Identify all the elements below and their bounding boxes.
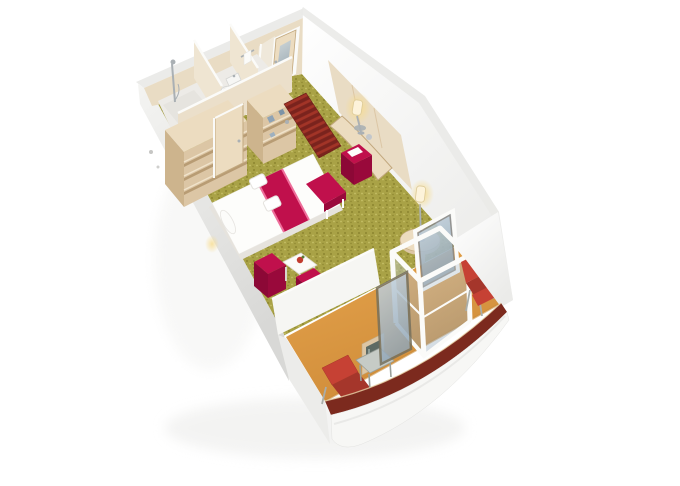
reading-light-glow xyxy=(205,235,219,253)
open-glass-door xyxy=(377,272,411,364)
desk-lamp-base xyxy=(358,131,365,135)
desk-kettle xyxy=(366,134,372,140)
cabin-floorplan-image xyxy=(0,0,680,486)
flush-button xyxy=(233,75,236,78)
desk-lamp-shade xyxy=(352,99,363,115)
closet-door-handle xyxy=(238,140,241,143)
cabin-3d-render xyxy=(0,0,680,486)
lamp-shade xyxy=(415,186,426,203)
fruit-leaf xyxy=(302,256,305,259)
wall-bracket xyxy=(157,166,160,169)
wall-bracket xyxy=(149,150,153,154)
shelf-item-chrome xyxy=(285,120,289,124)
